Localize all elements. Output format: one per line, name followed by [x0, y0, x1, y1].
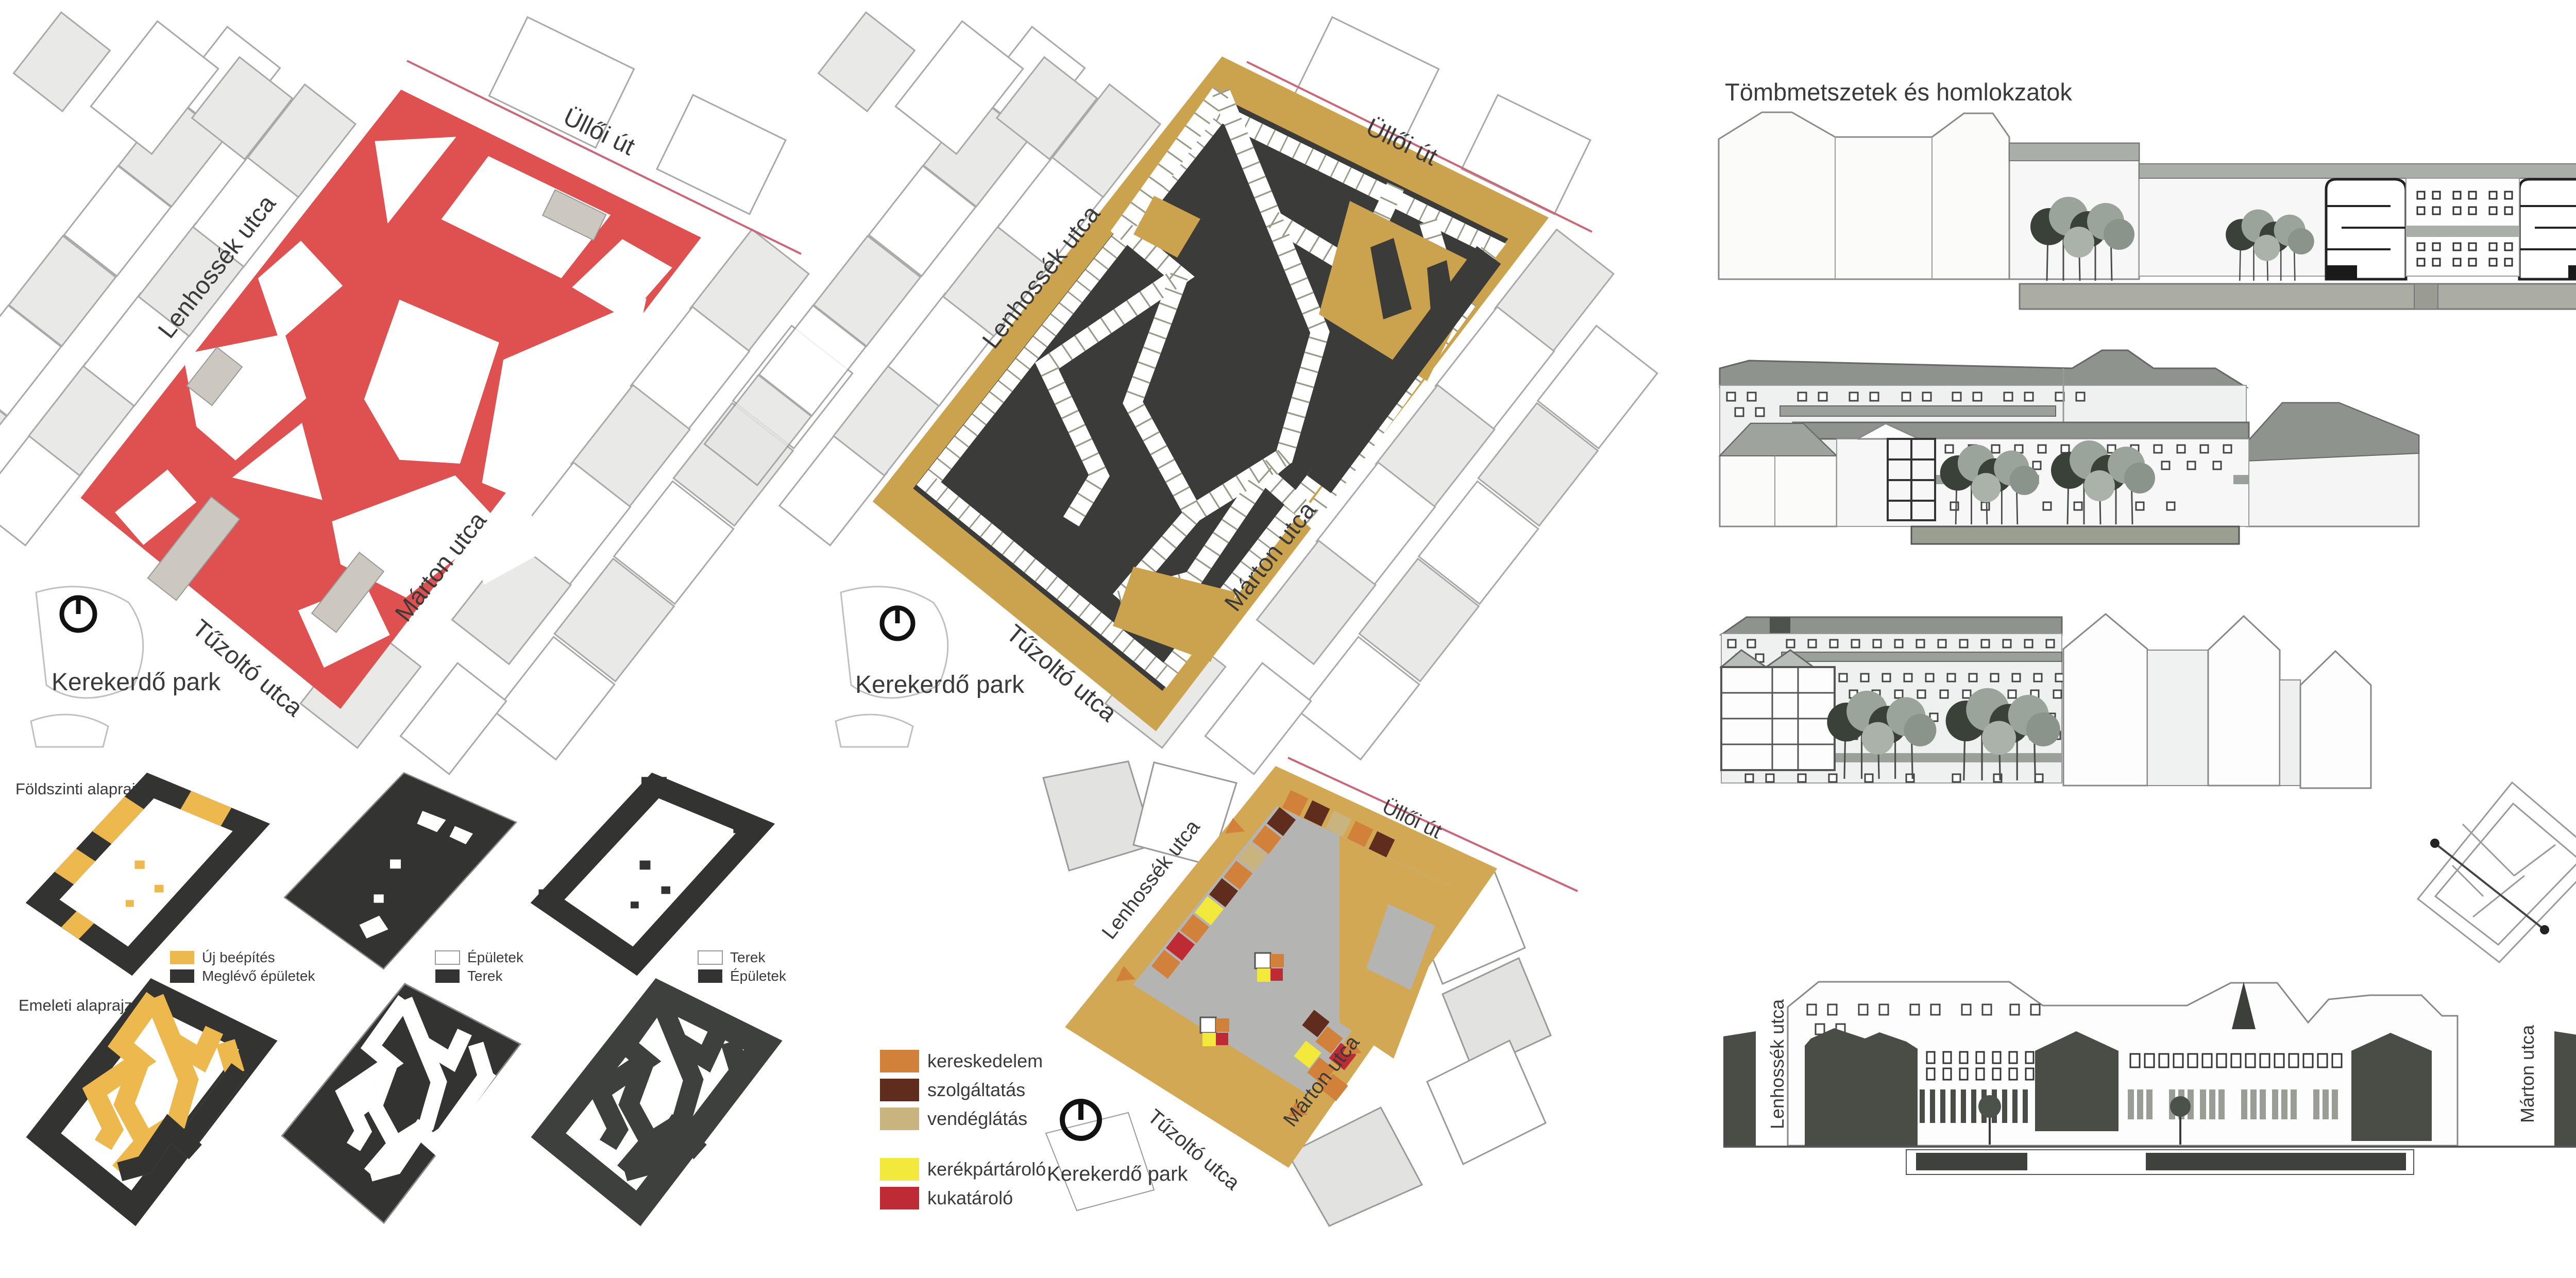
svg-text:kukatároló: kukatároló — [927, 1187, 1013, 1208]
svg-text:Meglévő épületek: Meglévő épületek — [202, 968, 315, 984]
svg-text:Tömbmetszetek és homlokzatok: Tömbmetszetek és homlokzatok — [1725, 78, 2072, 106]
svg-text:vendéglátás: vendéglátás — [927, 1108, 1027, 1129]
svg-text:Terek: Terek — [467, 968, 503, 984]
svg-text:Új beépítés: Új beépítés — [202, 949, 275, 965]
svg-text:Márton utca: Márton utca — [2517, 1025, 2538, 1123]
svg-text:Földszinti alaprajz: Földszinti alaprajz — [15, 780, 143, 798]
svg-text:Terek: Terek — [730, 949, 766, 965]
svg-text:Emeleti alaprajz: Emeleti alaprajz — [19, 996, 132, 1014]
svg-text:kereskedelem: kereskedelem — [927, 1050, 1043, 1071]
svg-text:kerékpártároló: kerékpártároló — [927, 1158, 1046, 1180]
svg-text:Kerekerdő park: Kerekerdő park — [855, 671, 1025, 698]
svg-text:Épületek: Épületek — [467, 949, 524, 965]
svg-text:Kerekerdő park: Kerekerdő park — [1047, 1163, 1188, 1185]
svg-text:Épületek: Épületek — [730, 968, 787, 984]
svg-text:Lenhossék utca: Lenhossék utca — [1767, 999, 1788, 1129]
svg-text:Kerekerdő park: Kerekerdő park — [52, 669, 221, 696]
svg-text:szolgáltatás: szolgáltatás — [927, 1079, 1025, 1100]
